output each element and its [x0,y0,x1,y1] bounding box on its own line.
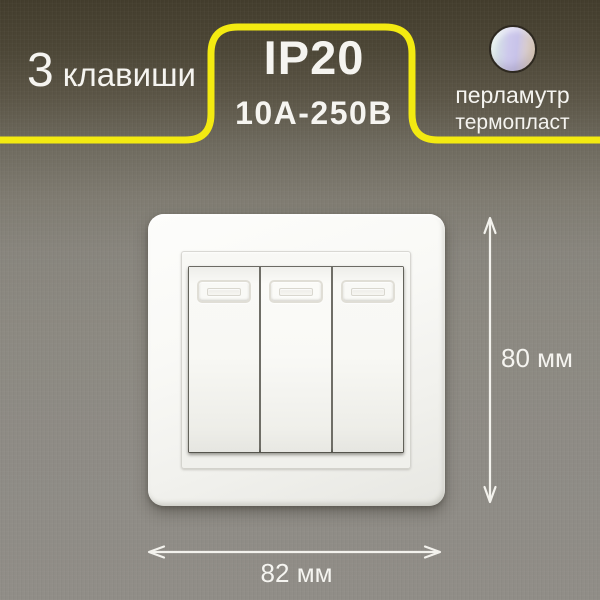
material-block: перламутр термопласт [440,25,585,134]
keys-count-number: 3 [27,47,54,95]
switch-key-right [333,267,403,452]
switch-key-left [189,267,259,452]
electrical-rating-label: 10А-250В [214,97,414,129]
height-dimension-label: 80 мм [501,343,573,374]
switch-key-middle [261,267,331,452]
pearl-swatch-icon [489,25,537,73]
key-slot-decoration [341,280,395,303]
product-card: 3 клавиши IP20 10А-250В перламутр термоп… [0,0,600,600]
protection-rating-label: IP20 [214,34,414,81]
material-color-label: перламутр [440,83,585,108]
key-slot-bar [207,288,241,296]
switch-keys-area [188,266,404,453]
key-slot-bar [351,288,385,296]
material-type-label: термопласт [440,111,585,134]
key-slot-decoration [197,280,251,303]
width-dimension-arrow [149,547,440,558]
spec-badge: IP20 10А-250В [214,34,414,129]
key-slot-decoration [269,280,323,303]
switch-frame [181,251,411,469]
switch-plate [148,214,445,506]
width-dimension-label: 82 мм [148,558,445,589]
height-dimension-arrow [485,218,496,502]
keys-count-block: 3 клавиши [27,47,196,95]
key-slot-bar [279,288,313,296]
keys-count-word: клавиши [63,58,196,91]
